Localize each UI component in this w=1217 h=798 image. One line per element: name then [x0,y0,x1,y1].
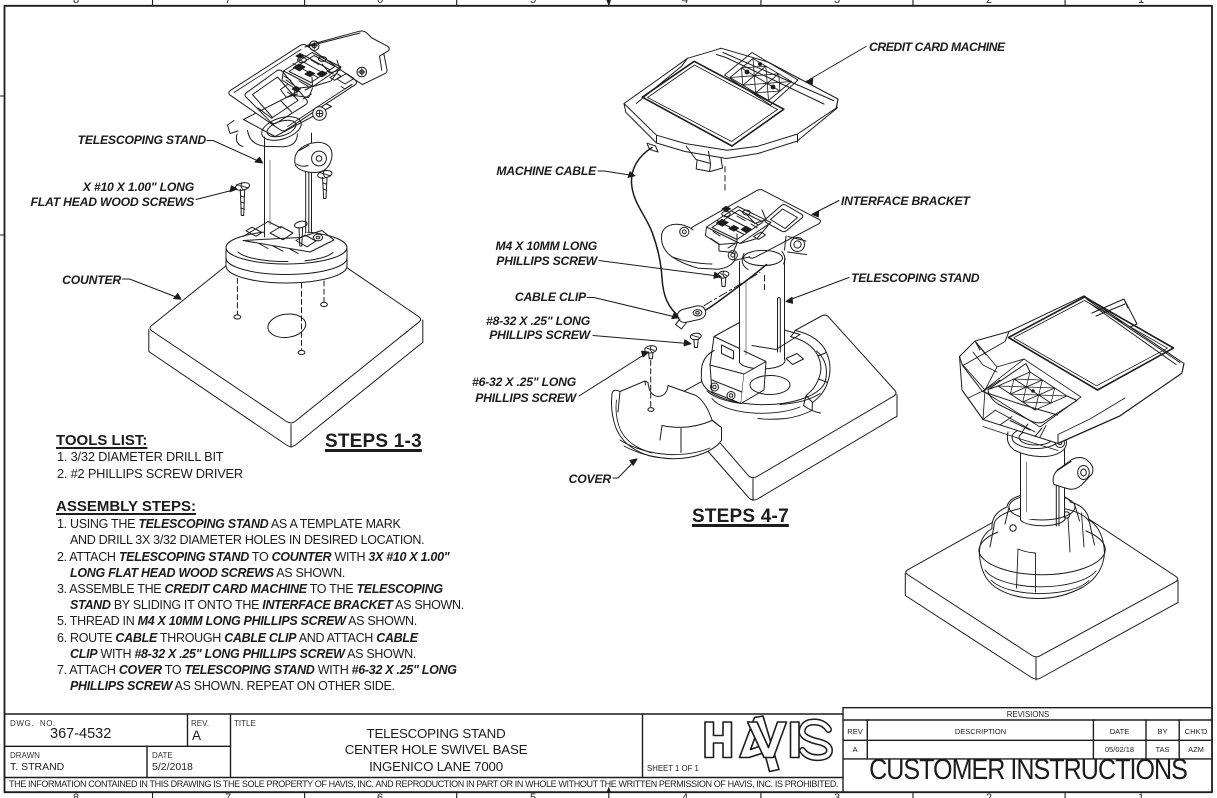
svg-text:6: 6 [377,0,383,6]
svg-text:1: 1 [1138,0,1144,6]
svg-text:4: 4 [682,0,688,6]
svg-text:3: 3 [834,792,840,798]
svg-text:8: 8 [73,792,79,798]
svg-text:2: 2 [986,0,992,6]
svg-text:5: 5 [530,792,536,798]
svg-text:8: 8 [73,0,79,6]
svg-text:7: 7 [225,0,231,6]
svg-text:4: 4 [682,792,688,798]
svg-text:6: 6 [377,792,383,798]
svg-text:1: 1 [1138,792,1144,798]
svg-text:7: 7 [225,792,231,798]
svg-text:2: 2 [986,792,992,798]
svg-text:3: 3 [834,0,840,6]
svg-text:5: 5 [530,0,536,6]
